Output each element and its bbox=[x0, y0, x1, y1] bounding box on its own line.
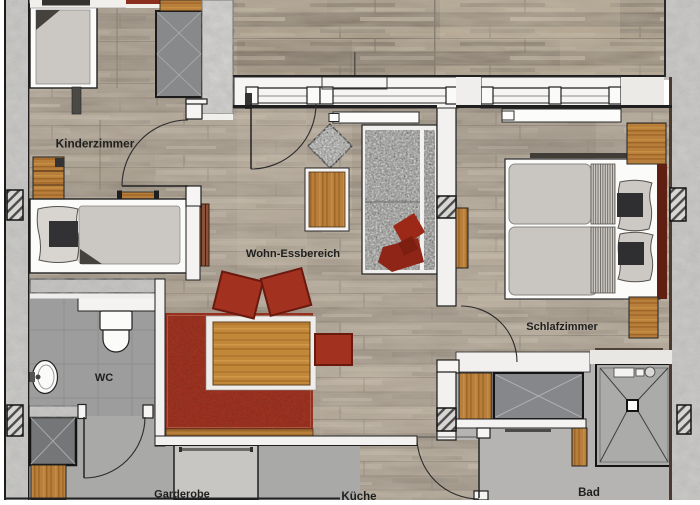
svg-text:WC: WC bbox=[95, 372, 113, 384]
svg-text:Wohn-Essbereich: Wohn-Essbereich bbox=[246, 248, 340, 260]
svg-text:Küche: Küche bbox=[341, 491, 376, 500]
svg-text:Bad: Bad bbox=[578, 487, 600, 499]
svg-text:Kinderzimmer: Kinderzimmer bbox=[56, 137, 135, 151]
svg-text:Garderobe: Garderobe bbox=[154, 489, 210, 501]
svg-text:Schlafzimmer: Schlafzimmer bbox=[526, 321, 598, 333]
